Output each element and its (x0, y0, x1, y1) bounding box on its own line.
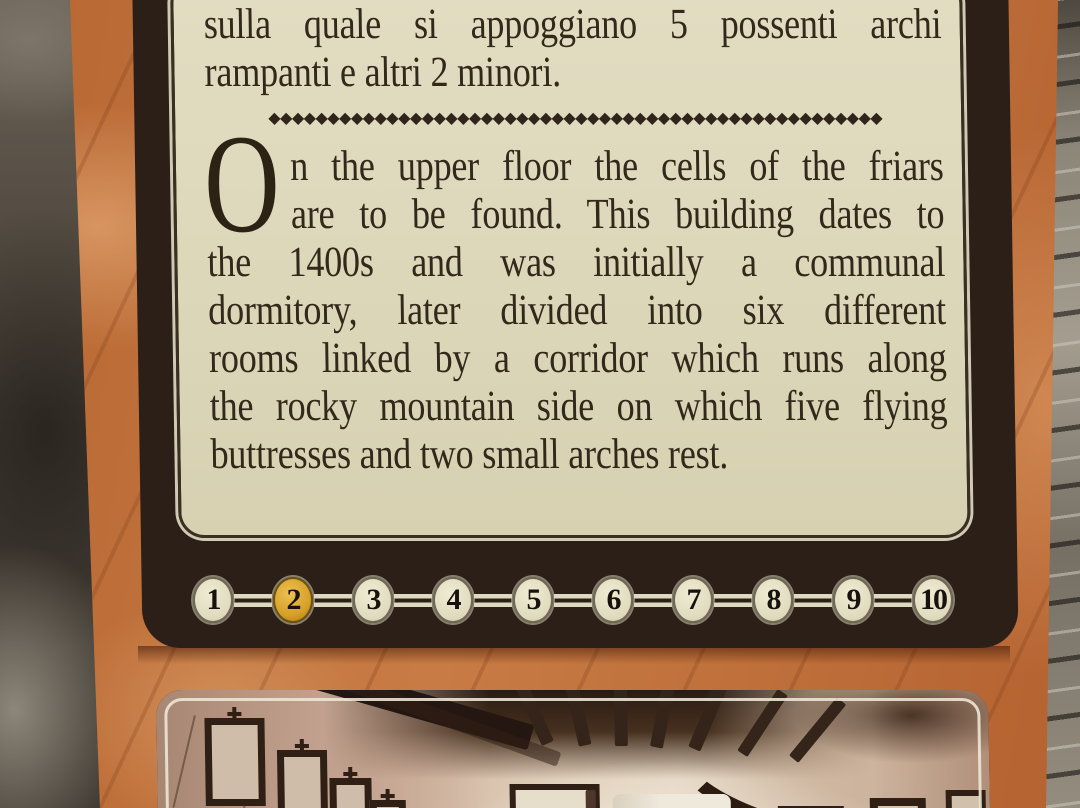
text-line: sulla quale si appoggiano 5 possenti arc… (203, 1, 941, 49)
text-line: buttresses and two small arches rest. (210, 431, 948, 479)
trail-step-8: 8 (753, 577, 793, 623)
numbered-trail-chain: 12345678910 (138, 577, 1008, 623)
text-line: dormitory, later divided into six differ… (208, 287, 946, 335)
chain-link (474, 594, 512, 607)
chain-link (634, 594, 672, 607)
text-line: the 1400s and was initially a communal (207, 239, 945, 287)
text-line: n the upper floor the cells of the friar… (206, 143, 944, 191)
trail-step-3: 3 (353, 577, 393, 623)
panel-drop-shadow (138, 646, 1010, 664)
italian-paragraph: sulla quale si appoggiano 5 possenti arc… (203, 1, 943, 97)
chain-link (394, 594, 432, 607)
text-line: the rocky mountain side on which five fl… (209, 383, 947, 431)
chain-link (874, 594, 912, 607)
text-card-content: p gg o p l i sulla quale si appoggiano 5… (173, 0, 968, 535)
english-paragraph-lines: n the upper floor the cells of the friar… (206, 143, 949, 479)
trail-step-5: 5 (513, 577, 553, 623)
chain-link (794, 594, 832, 607)
trail-step-10: 10 (913, 577, 953, 623)
chain-link (234, 594, 272, 607)
trail-step-9: 9 (833, 577, 873, 623)
text-line: rooms linked by a corridor which runs al… (209, 335, 947, 383)
diamond-divider: ◆◆◆◆◆◆◆◆◆◆◆◆◆◆◆◆◆◆◆◆◆◆◆◆◆◆◆◆◆◆◆◆◆◆◆◆◆◆◆◆… (205, 105, 945, 131)
text-line: are to be found. This building dates to (206, 191, 944, 239)
chain-link (554, 594, 592, 607)
photo-inner-outline (164, 698, 982, 808)
text-line: rampanti e altri 2 minori. (204, 49, 942, 97)
trail-step-4: 4 (433, 577, 473, 623)
trail-step-6: 6 (593, 577, 633, 623)
trail-step-2: 2 (273, 577, 313, 623)
chain-link (314, 594, 352, 607)
trail-step-7: 7 (673, 577, 713, 623)
sign-photograph: p gg o p l i sulla quale si appoggiano 5… (0, 0, 1080, 808)
text-card: p gg o p l i sulla quale si appoggiano 5… (170, 0, 971, 538)
english-paragraph: O n the upper floor the cells of the fri… (206, 143, 949, 479)
trail-step-1: 1 (193, 577, 233, 623)
chain-link (714, 594, 752, 607)
corridor-photo (156, 690, 991, 808)
